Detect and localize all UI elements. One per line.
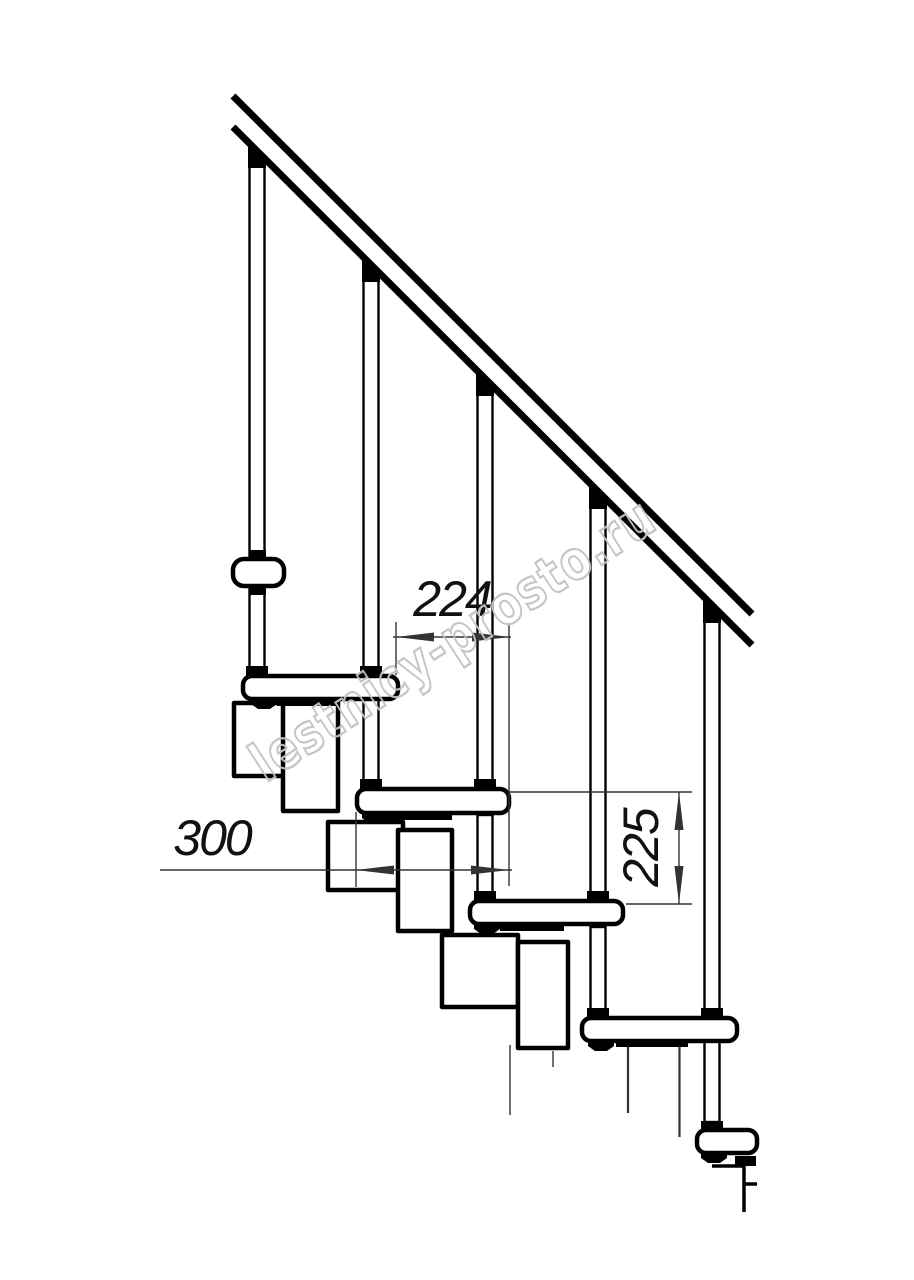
dim-arrow-down: [675, 866, 684, 904]
module-block: [328, 822, 403, 890]
module-block: [398, 830, 452, 931]
baluster: [364, 274, 379, 670]
tread-cap: [587, 1008, 609, 1019]
staircase-drawing-page: 224 300 225 lestnicy-prosto.ru: [0, 0, 914, 1280]
dimension-value-depth: 300: [173, 810, 253, 866]
tread-cap: [474, 779, 496, 790]
support-pole: [591, 927, 606, 1010]
step-edge: [712, 1166, 744, 1212]
tread-cap: [246, 666, 268, 677]
tread-cap: [587, 891, 609, 902]
tread-cap: [701, 1121, 723, 1132]
tread-4: [582, 1018, 737, 1041]
support-pole: [705, 1042, 720, 1122]
underside-clamp: [474, 924, 500, 934]
tread-cap: [701, 1008, 723, 1019]
tread-3: [470, 901, 623, 924]
bottom-step-outline: [712, 1166, 757, 1212]
underside-strip: [616, 1041, 688, 1047]
baluster: [705, 615, 720, 1012]
support-pole: [478, 815, 493, 893]
tread-cap: [360, 779, 382, 790]
underside-strip: [384, 813, 452, 820]
module-block: [442, 935, 518, 1007]
newel-collar: [233, 550, 284, 595]
staircase-technical-drawing: 224 300 225 lestnicy-prosto.ru: [0, 0, 914, 1280]
dimension-value-rise: 225: [613, 807, 669, 888]
underside-clamp: [588, 1041, 614, 1051]
module-block: [518, 942, 568, 1048]
tread-5: [697, 1130, 757, 1153]
dim-arrow-up: [675, 792, 684, 830]
underside-clamp: [701, 1153, 727, 1163]
hidden-edge-lines: [510, 1041, 680, 1137]
tread-cap: [474, 891, 496, 902]
underside-strip: [500, 924, 564, 931]
collar-body: [233, 559, 284, 586]
tread-2: [357, 789, 509, 813]
